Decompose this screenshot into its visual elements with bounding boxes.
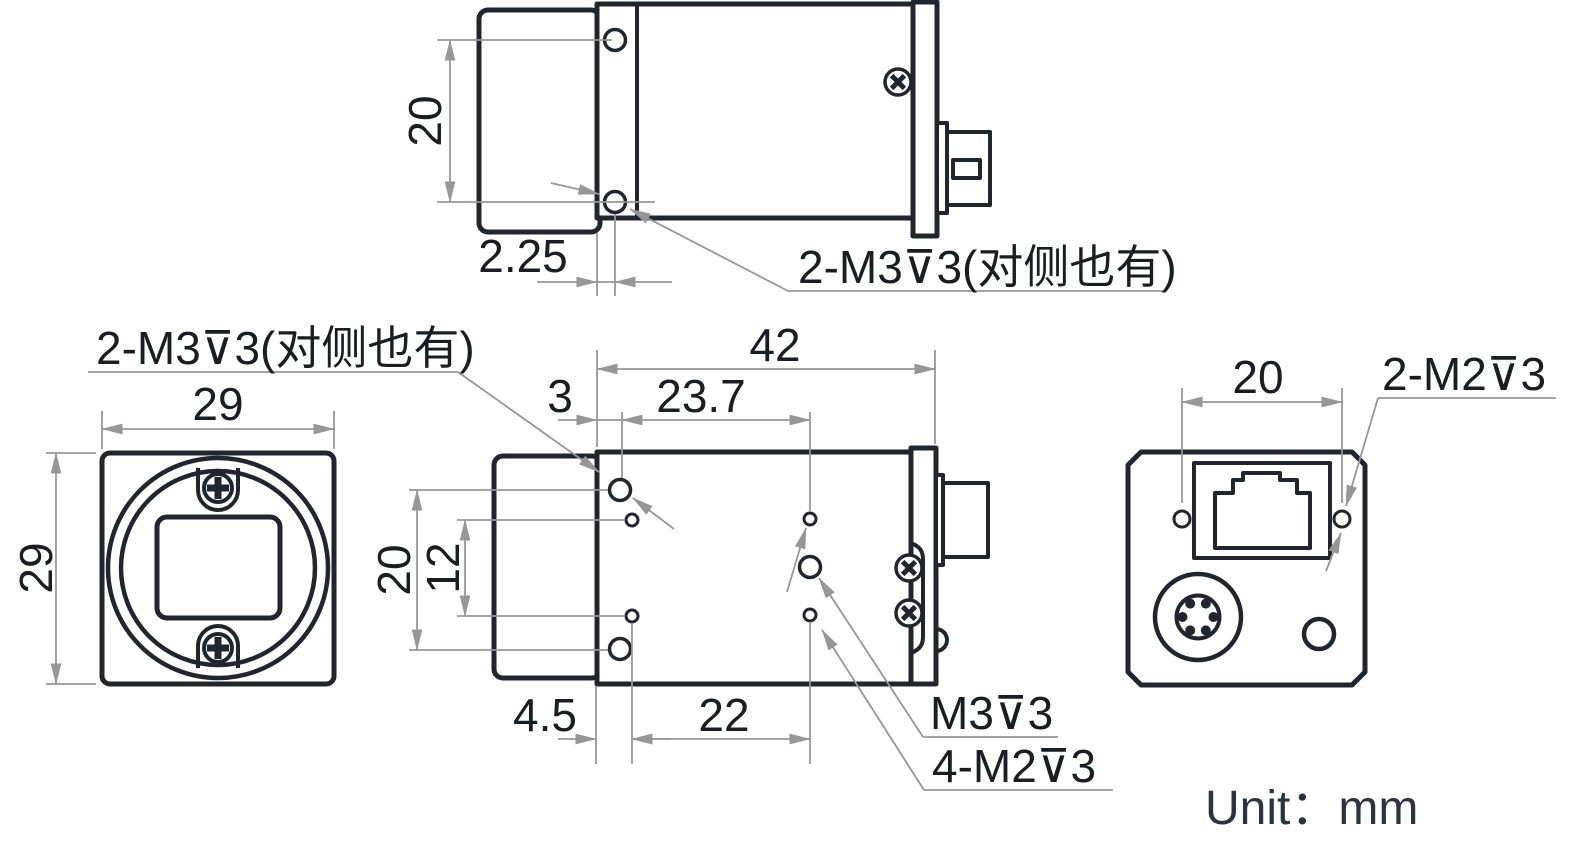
lens-barrel-top: [479, 10, 600, 232]
sensor-window: [157, 517, 280, 618]
dim-side-m2-pitch: 12: [417, 542, 469, 593]
rear-plate-top: [913, 2, 937, 236]
dim-side-m3-span: 23.7: [656, 370, 746, 422]
power-io-connector: [1155, 574, 1241, 660]
m3-hole-side-center: [800, 557, 821, 578]
screw-front-bottom: [204, 634, 232, 662]
m2-hole-side-4: [804, 609, 816, 621]
dim-top-hole-offset: 2.25: [478, 230, 568, 282]
camera-body-top: [597, 4, 913, 218]
drawing-page: 20 2.25 2-M3⊽3(对侧也有): [0, 0, 1574, 857]
m2-hole-side-2: [626, 610, 638, 622]
label-back-thread: 2-M2⊽3: [1382, 348, 1546, 400]
unit-note: Unit：mm: [1205, 782, 1418, 835]
dim-front-width: 29: [192, 378, 243, 430]
dim-front-height: 29: [10, 542, 62, 593]
m3-hole-side-2: [610, 639, 631, 660]
dim-back-pitch: 20: [1232, 351, 1283, 403]
camera-dimension-drawing: 20 2.25 2-M3⊽3(对侧也有): [0, 0, 1574, 857]
screw-front-top: [204, 474, 232, 502]
label-m2-depth: 4-M2⊽3: [932, 740, 1096, 792]
label-top-thread: 2-M3⊽3(对侧也有): [798, 241, 1177, 293]
m2-hole-back-2: [1334, 511, 1350, 527]
dim-side-front-offset: 3: [547, 370, 573, 422]
label-side-thread: 2-M3⊽3(对侧也有): [96, 322, 475, 374]
connector-block-side: [943, 483, 988, 557]
dim-top-hole-pitch: 20: [399, 95, 451, 146]
camera-body-side: [597, 452, 911, 684]
m2-hole-side-1: [626, 514, 638, 526]
label-m3-depth: M3⊽3: [930, 687, 1053, 739]
dim-side-length: 42: [749, 319, 800, 371]
m3-hole-side-1: [610, 480, 631, 501]
led-indicator-hole: [1304, 619, 1334, 649]
m2-hole-side-3: [804, 513, 816, 525]
dim-side-m2-span: 22: [698, 689, 749, 741]
m2-hole-back-1: [1174, 511, 1190, 527]
dim-side-m3-pitch: 20: [368, 544, 420, 595]
dim-side-m2-offset: 4.5: [513, 689, 577, 741]
